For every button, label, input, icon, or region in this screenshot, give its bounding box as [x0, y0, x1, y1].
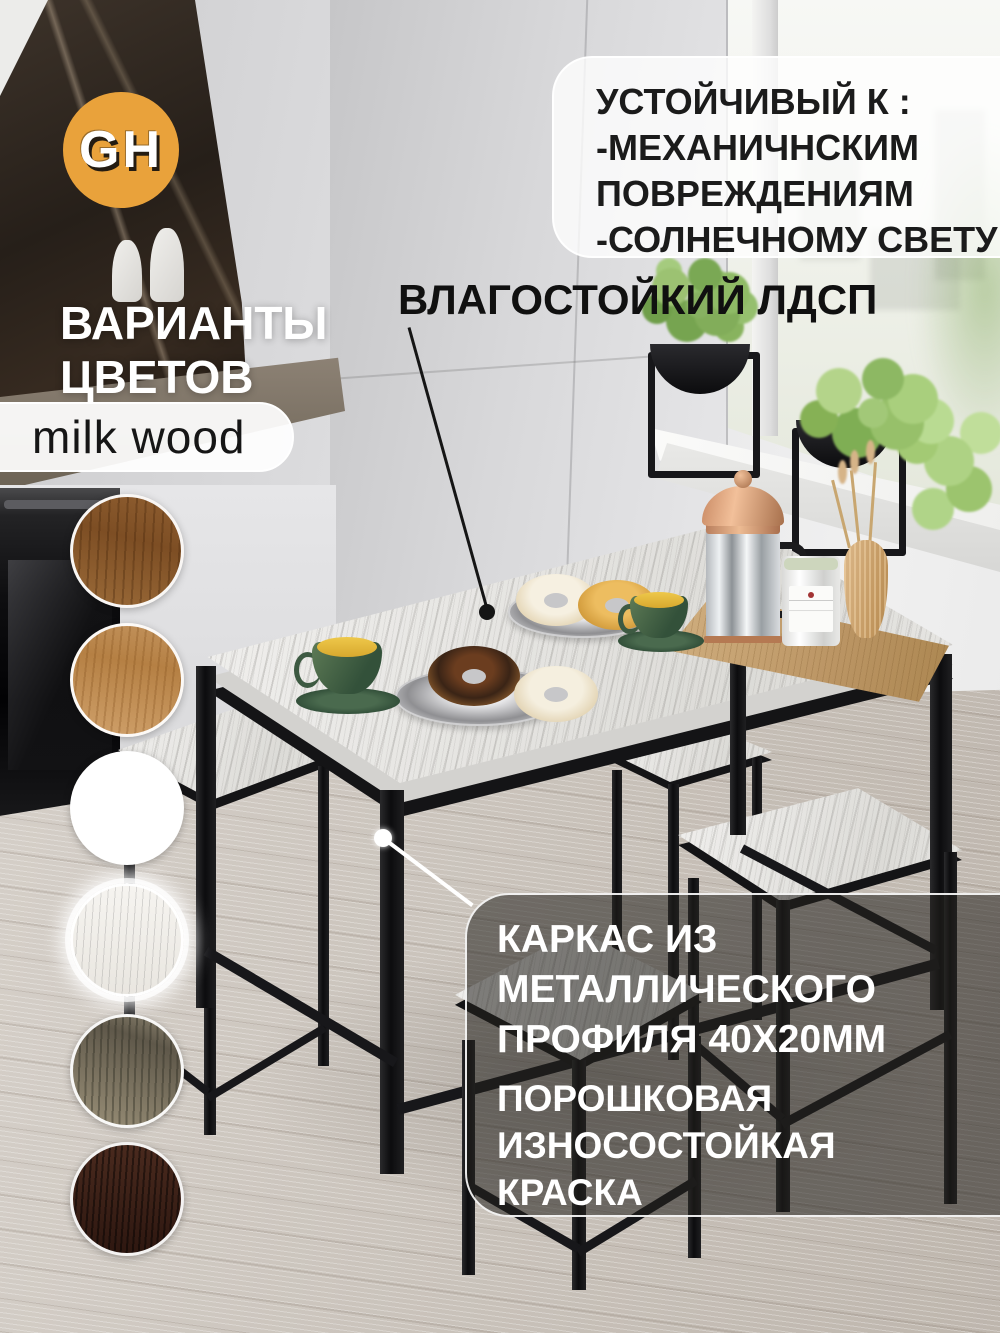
brand-logo-text: GH: [79, 120, 163, 180]
plant: [858, 398, 888, 428]
swatch-oak-wotan-light: [70, 623, 184, 737]
oil-bottle: [150, 228, 184, 302]
french-press-base: [704, 636, 782, 643]
pointer-dot: [479, 604, 495, 620]
frame-callout-paragraph: КАРКАС ИЗ МЕТАЛЛИЧЕСКОГО ПРОФИЛЯ 40Х20ММ: [497, 915, 1000, 1065]
tabletop-material-label: ВЛАГОСТОЙКИЙ ЛДСП: [398, 276, 877, 324]
color-variants-title-line: ЦВЕТОВ: [60, 350, 327, 404]
frame-callout-line: МЕТАЛЛИЧЕСКОГО: [497, 965, 1000, 1015]
swatch-wenge: [70, 1142, 184, 1256]
durability-line: УСТОЙЧИВЫЙ К :: [596, 79, 1000, 125]
oil-bottle: [112, 240, 142, 302]
frame-callout-line: ИЗНОСОСТОЙКАЯ: [497, 1122, 1000, 1169]
durability-line: ПОВРЕЖДЕНИЯМ: [596, 171, 1000, 217]
glazed-donut: [514, 666, 598, 722]
frame-callout-line: ПРОФИЛЯ 40Х20ММ: [497, 1015, 1000, 1065]
frame-callout: КАРКАС ИЗ МЕТАЛЛИЧЕСКОГО ПРОФИЛЯ 40Х20ММ…: [465, 893, 1000, 1217]
dried-stem-head: [838, 460, 847, 484]
dried-stem-head: [850, 450, 859, 474]
durability-callout: УСТОЙЧИВЫЙ К : -МЕХАНИЧНСКИМ ПОВРЕЖДЕНИЯ…: [552, 56, 1000, 258]
product-card-image: GH УСТОЙЧИВЫЙ К : -МЕХАНИЧНСКИМ ПОВРЕЖДЕ…: [0, 0, 1000, 1333]
swatch-weathered-gray: [70, 1014, 184, 1128]
candle-wax: [784, 558, 838, 570]
durability-line: -СОЛНЕЧНОМУ СВЕТУ: [596, 217, 1000, 263]
swatch-white: [70, 751, 184, 865]
dried-stem-head: [866, 440, 875, 464]
pointer-dot: [374, 829, 392, 847]
vase: [844, 540, 888, 638]
selected-color-name: milk wood: [32, 410, 246, 464]
swatch-milk-wood: [70, 883, 184, 997]
cup-drink: [317, 637, 377, 657]
color-variants-title: ВАРИАНТЫ ЦВЕТОВ: [60, 296, 327, 404]
frame-callout-line: КРАСКА: [497, 1169, 1000, 1216]
french-press-knob: [734, 470, 752, 488]
selected-color-pill: milk wood: [0, 402, 294, 472]
french-press: [706, 528, 780, 640]
chocolate-donut: [428, 646, 520, 706]
color-variants-title-line: ВАРИАНТЫ: [60, 296, 327, 350]
frame-callout-line: ПОРОШКОВАЯ: [497, 1075, 1000, 1122]
cup-drink: [634, 592, 684, 608]
brand-logo: GH: [63, 92, 179, 208]
swatch-oak-wotan-dark: [70, 494, 184, 608]
frame-callout-line: КАРКАС ИЗ: [497, 915, 1000, 965]
candle-label-emblem: [808, 592, 814, 598]
durability-line: -МЕХАНИЧНСКИМ: [596, 125, 1000, 171]
frame-callout-paragraph: ПОРОШКОВАЯ ИЗНОСОСТОЙКАЯ КРАСКА: [497, 1075, 1000, 1216]
